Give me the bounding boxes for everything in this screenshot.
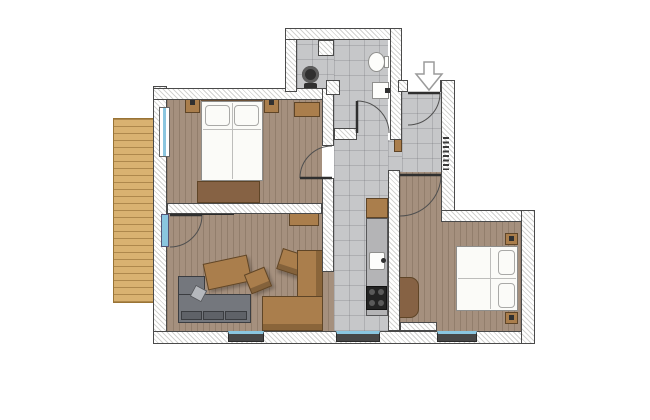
wall-bedroom2-step [400, 322, 437, 331]
bedroom-2-bottom-window [437, 331, 477, 342]
wall-bathroom-bottom [334, 128, 357, 140]
pillow [205, 105, 230, 126]
wardrobe [397, 277, 419, 318]
wall-entry-right [441, 80, 455, 216]
corridor-bottom-window [336, 331, 380, 342]
wall-right [521, 210, 535, 344]
entrance-arrow-icon [416, 62, 442, 90]
duvet-edge [490, 248, 491, 309]
bedroom-1-left-window-glass [163, 108, 166, 156]
kitchen-faucet [381, 258, 386, 263]
wall-bathroom-top [285, 28, 402, 40]
wall-living-corridor-lower [322, 178, 334, 272]
sofa-cushion [181, 311, 202, 320]
toilet-cistern [384, 56, 389, 68]
duvet-edge [203, 129, 261, 130]
bedside-lamp-icon [269, 100, 274, 105]
burner [369, 300, 375, 306]
sofa-cushion [203, 311, 224, 320]
wall-bedroom1-living-divider [167, 203, 322, 214]
burner [378, 289, 384, 295]
balcony-door-glass [161, 214, 169, 247]
pillow [234, 105, 259, 126]
floor-plan [0, 0, 650, 420]
bed-split-line [232, 103, 233, 179]
bedside-lamp-icon [509, 315, 514, 320]
bedside-lamp-icon [509, 236, 514, 241]
bedroom-2-upper-floor [400, 172, 441, 226]
pillow [498, 283, 515, 308]
living-room-passage-floor [322, 272, 334, 331]
bedside-lamp-icon [190, 100, 195, 105]
burner [369, 289, 375, 295]
sofa-cushion [225, 311, 247, 320]
toilet [368, 52, 385, 72]
wall-corridor-bedroom2 [388, 170, 400, 331]
wall-entry-top-left [398, 80, 408, 92]
pillow [498, 250, 515, 275]
kitchen-cabinet [366, 198, 388, 218]
wall-top-bedroom-1 [153, 88, 334, 100]
dresser [294, 102, 320, 117]
living-room-bottom-window [228, 331, 264, 342]
corner-bench-bottom [262, 296, 323, 331]
washing-machine-icon [302, 66, 319, 83]
wall-bathroom-tab-a [318, 40, 334, 56]
entry-hall-floor [402, 92, 441, 174]
wardrobe-chest [197, 181, 260, 203]
wall-living-corridor-upper [322, 88, 334, 146]
burner [378, 300, 384, 306]
bed-split-line [458, 278, 516, 279]
wall-bathroom-tab-b [326, 80, 340, 95]
